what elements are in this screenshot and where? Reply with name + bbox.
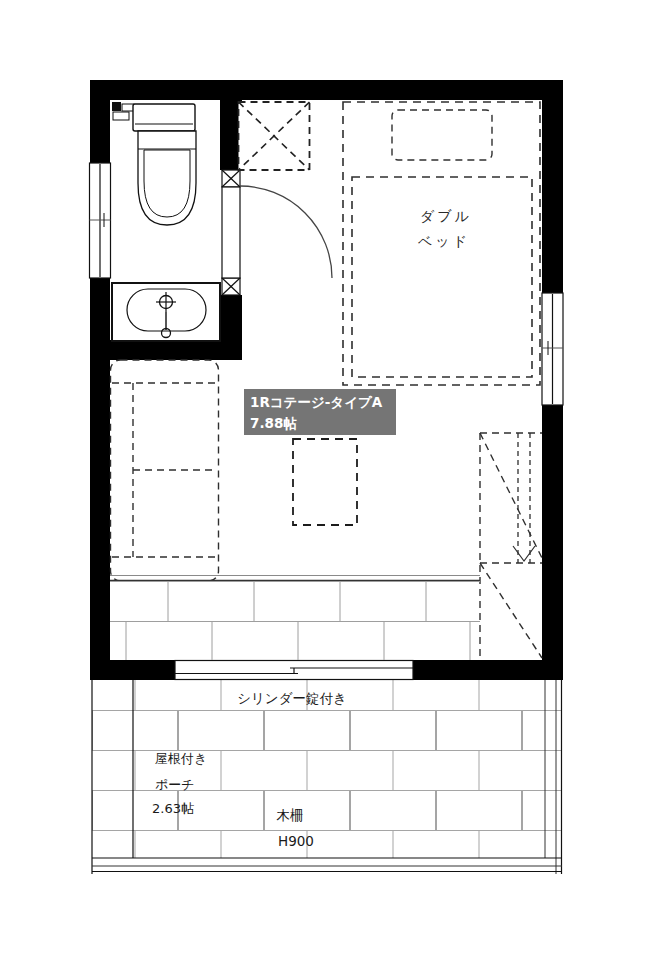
door-lock-note: シリンダー錠付き: [237, 690, 347, 706]
loft-ladder-symbol: [480, 433, 542, 660]
ladder-arrow-icon: [513, 546, 535, 561]
toilet-control-2: [122, 104, 134, 111]
unit-area-text: 7.88帖: [250, 415, 297, 431]
step-brick-floor: [110, 581, 480, 660]
door-leaf: [222, 187, 240, 278]
toilet-bowl: [138, 131, 196, 225]
bed-label-line2: ベッド: [418, 233, 470, 249]
table-symbol: [293, 439, 357, 525]
fence-name-text: 木柵: [277, 807, 304, 823]
unit-label: 1Rコテージ-タイプA 7.88帖: [244, 389, 396, 435]
porch-label-line1: 屋根付き: [155, 751, 207, 766]
porch-area-text: 2.63帖: [152, 801, 194, 816]
pillow: [392, 110, 492, 160]
door-swing-arc: [240, 186, 332, 278]
toilet-control-1: [112, 102, 121, 111]
earthen-floor-strip: [110, 576, 480, 661]
window-right: [542, 293, 563, 405]
sliding-door-symbol: [175, 661, 413, 680]
porch-label-line2: ポーチ: [155, 777, 195, 792]
floor-plan: ダブル ベッド 1Rコテージ-タイプA 7.88帖 シリンダー錠付き: [0, 0, 650, 957]
fence-height-text: H900: [278, 833, 314, 849]
unit-name-text: 1Rコテージ-タイプA: [250, 394, 383, 410]
toilet-control-3: [113, 112, 129, 120]
porch-brick-floor: [92, 680, 562, 858]
sofa-symbol: [111, 360, 219, 581]
wall-below-sink: [90, 340, 242, 360]
wall-top: [90, 80, 563, 100]
entrance-door-symbol: [222, 170, 332, 295]
ceiling-hatch-symbol: [239, 102, 310, 170]
double-bed-symbol: ダブル ベッド: [343, 102, 540, 385]
window-left: [90, 163, 111, 278]
toilet-tank: [133, 104, 195, 131]
floor-plan-drawing: ダブル ベッド 1Rコテージ-タイプA 7.88帖 シリンダー錠付き: [0, 0, 650, 957]
sink-symbol: [112, 283, 220, 341]
toilet-symbol: [112, 102, 196, 225]
bed-label-line1: ダブル: [420, 208, 472, 224]
